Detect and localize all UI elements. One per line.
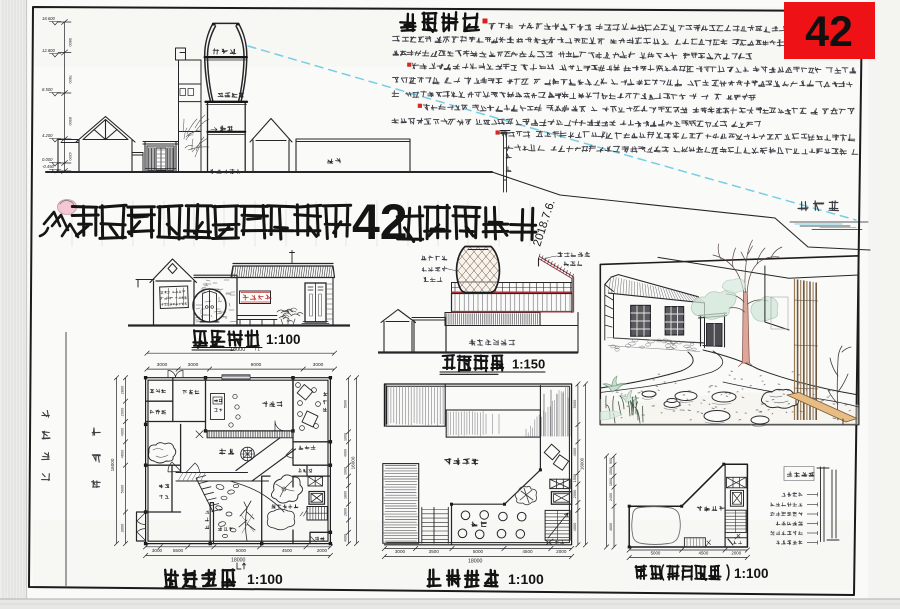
svg-text:16000: 16000	[580, 457, 585, 470]
svg-text:4500: 4500	[699, 551, 709, 556]
svg-text:2000: 2000	[731, 551, 741, 556]
svg-text:9000: 9000	[251, 362, 262, 368]
svg-text:4600: 4600	[120, 449, 125, 458]
svg-text:Γ1: Γ1	[255, 347, 260, 352]
svg-text:1500: 1500	[572, 473, 577, 482]
svg-text:2000: 2000	[572, 489, 577, 498]
svg-text:1:150: 1:150	[512, 357, 545, 372]
svg-text:18000: 18000	[231, 558, 246, 564]
svg-text:16000: 16000	[110, 458, 115, 471]
svg-text:5000: 5000	[473, 549, 484, 554]
svg-text:4600: 4600	[609, 523, 613, 531]
svg-text:18000: 18000	[468, 559, 483, 565]
svg-text:5000: 5000	[120, 484, 125, 493]
svg-text:1:100: 1:100	[247, 571, 283, 587]
svg-text:2000: 2000	[120, 407, 125, 416]
svg-text:5000: 5000	[572, 399, 577, 408]
svg-text:-0.450: -0.450	[42, 164, 55, 169]
svg-text:5500: 5500	[173, 548, 184, 553]
svg-text:3000: 3000	[395, 549, 406, 554]
svg-text:42: 42	[805, 8, 853, 56]
svg-text:12.800: 12.800	[42, 48, 55, 53]
svg-text:3000: 3000	[120, 523, 125, 532]
svg-text:5800: 5800	[68, 38, 72, 46]
svg-text:4000: 4000	[572, 522, 577, 531]
svg-text:4500: 4500	[522, 549, 533, 554]
svg-text:2800: 2800	[344, 508, 348, 516]
svg-text:5000: 5000	[651, 551, 661, 556]
svg-text:4000: 4000	[572, 447, 577, 456]
svg-text:900: 900	[609, 458, 613, 464]
svg-text:4000: 4000	[344, 449, 348, 457]
svg-text:0.000: 0.000	[42, 157, 53, 162]
svg-text:1:100: 1:100	[734, 566, 769, 581]
svg-text:2000: 2000	[556, 549, 567, 554]
svg-text:4500: 4500	[282, 548, 293, 553]
svg-text:4.200: 4.200	[42, 133, 53, 138]
svg-text:1500: 1500	[609, 467, 613, 475]
svg-text:3000: 3000	[152, 548, 163, 553]
svg-text:1000: 1000	[344, 433, 348, 441]
svg-text:4000: 4000	[344, 534, 348, 542]
svg-text:1:100: 1:100	[508, 571, 544, 587]
svg-text:2800: 2800	[120, 385, 125, 394]
svg-text:5000: 5000	[344, 400, 348, 408]
svg-text:16000: 16000	[351, 456, 356, 469]
svg-text:2400: 2400	[609, 493, 613, 501]
svg-text:3000: 3000	[188, 362, 199, 368]
svg-text:4000: 4000	[120, 427, 125, 436]
svg-text:1000: 1000	[344, 467, 348, 475]
svg-text:3500: 3500	[429, 549, 440, 554]
svg-text:18000: 18000	[230, 347, 245, 353]
svg-text:18.600: 18.600	[42, 16, 55, 21]
svg-text:8500: 8500	[68, 117, 72, 125]
svg-text:7800: 7800	[68, 75, 72, 83]
svg-text:1800: 1800	[344, 491, 348, 499]
svg-text:4200: 4200	[68, 152, 72, 160]
svg-text:3000: 3000	[157, 362, 168, 368]
svg-text:1:100: 1:100	[266, 332, 301, 347]
svg-text:3000: 3000	[313, 362, 324, 368]
svg-text:8.500: 8.500	[42, 87, 53, 92]
svg-text:5000: 5000	[236, 548, 247, 553]
svg-text:1800: 1800	[609, 478, 613, 486]
svg-text:2000: 2000	[317, 548, 328, 553]
